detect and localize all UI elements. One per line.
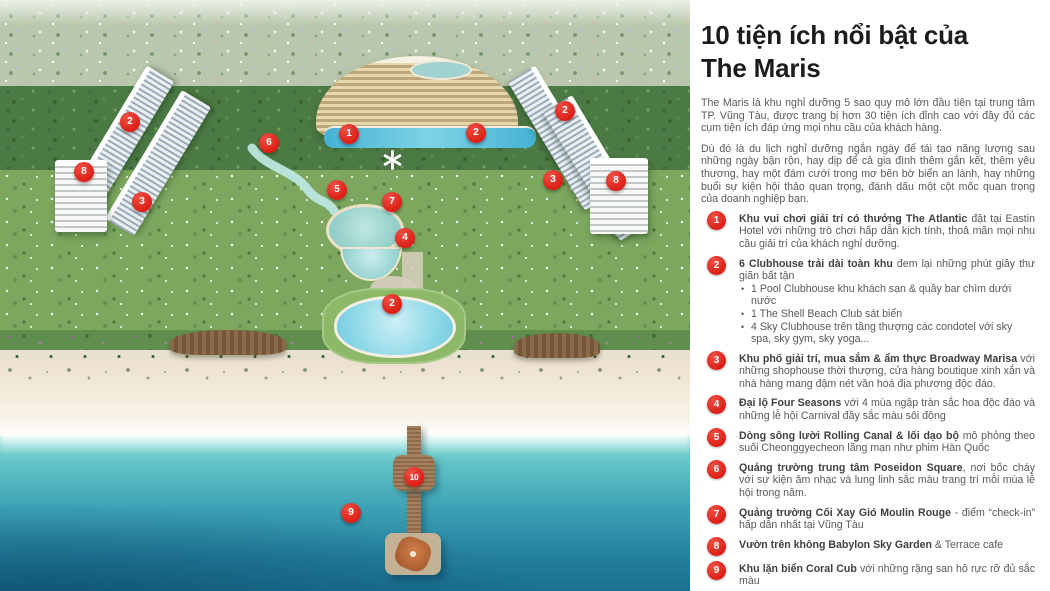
amenity-item: 3 Khu phố giải trí, mua sắm & ẩm thực Br… xyxy=(701,353,1035,391)
map-marker: 8 xyxy=(74,162,94,182)
amenity-item: 7 Quảng trường Cối Xay Gió Moulin Rouge … xyxy=(701,507,1035,532)
amenity-title: 6 Clubhouse trải dài toàn khu xyxy=(739,258,893,270)
amenity-title: Quảng trường Cối Xay Gió Moulin Rouge xyxy=(739,507,951,519)
amenity-text: Vườn trên không Babylon Sky Garden & Ter… xyxy=(739,539,1035,552)
palapa-roof-right xyxy=(514,333,600,358)
amenity-title: Đại lộ Four Seasons xyxy=(739,397,841,409)
map-marker: 6 xyxy=(259,133,279,153)
info-panel: 10 tiện ích nổi bật của The Maris The Ma… xyxy=(690,0,1050,591)
amenity-title: Dòng sông lười Rolling Canal & lối dạo b… xyxy=(739,430,959,442)
amenity-number-badge: 2 xyxy=(707,256,726,275)
amenity-text: Khu vui chơi giải trí có thưởng The Atla… xyxy=(739,213,1035,251)
amenity-number-badge: 7 xyxy=(707,505,726,524)
amenity-text: Khu phố giải trí, mua sắm & ẩm thực Broa… xyxy=(739,353,1035,391)
amenity-item: 6 Quảng trường trung tâm Poseidon Square… xyxy=(701,462,1035,500)
map-marker: 4 xyxy=(395,228,415,248)
amenities-list: 1 Khu vui chơi giải trí có thưởng The At… xyxy=(701,213,1035,591)
amenity-title: Khu vui chơi giải trí có thưởng The Atla… xyxy=(739,213,967,225)
map-marker: 2 xyxy=(466,123,486,143)
shoreline-foam xyxy=(0,420,690,454)
map-marker: 1 xyxy=(339,124,359,144)
intro-paragraph-2: Dù đó là du lịch nghỉ dưỡng ngắn ngày để… xyxy=(701,143,1035,206)
page-title: 10 tiện ích nổi bật của The Maris xyxy=(701,19,1035,85)
hotel-roof-deck xyxy=(410,60,472,80)
map-marker: 7 xyxy=(382,192,402,212)
amenity-number-badge: 8 xyxy=(707,537,726,556)
title-line-1: 10 tiện ích nổi bật của xyxy=(701,20,968,50)
amenity-sub-bullet: 4 Sky Clubhouse trên tầng thượng các con… xyxy=(739,321,1035,346)
amenity-item: 9 Khu lặn biển Coral Cub với những rặng … xyxy=(701,563,1035,588)
map-marker: 10 xyxy=(404,467,424,487)
amenity-number-badge: 3 xyxy=(707,351,726,370)
amenity-text: Quảng trường Cối Xay Gió Moulin Rouge - … xyxy=(739,507,1035,532)
amenity-item: 1 Khu vui chơi giải trí có thưởng The At… xyxy=(701,213,1035,251)
amenity-number-badge: 6 xyxy=(707,460,726,479)
amenity-text: Khu lặn biển Coral Cub với những rặng sa… xyxy=(739,563,1035,588)
amenity-item: 5 Dòng sông lười Rolling Canal & lối dạo… xyxy=(701,430,1035,455)
amenity-description: & Terrace cafe xyxy=(932,539,1003,551)
map-marker: 5 xyxy=(327,180,347,200)
map-marker: 2 xyxy=(555,101,575,121)
amenity-text: 6 Clubhouse trải dài toàn khu đem lại nh… xyxy=(739,258,1035,346)
amenity-text: Đại lộ Four Seasons với 4 mùa ngập tràn … xyxy=(739,397,1035,422)
amenity-number-badge: 4 xyxy=(707,395,726,414)
beach-umbrella-row xyxy=(0,364,690,388)
map-marker: 3 xyxy=(132,192,152,212)
intro-paragraph-1: The Maris là khu nghỉ dưỡng 5 sao quy mô… xyxy=(701,97,1035,135)
amenity-title: Quảng trường trung tâm Poseidon Square xyxy=(739,462,963,474)
amenity-number-badge: 9 xyxy=(707,561,726,580)
amenity-title: Khu lặn biển Coral Cub xyxy=(739,563,857,575)
map-marker: 2 xyxy=(120,112,140,132)
tower-block-right xyxy=(590,158,648,234)
map-marker: 9 xyxy=(341,503,361,523)
amenity-text: Quảng trường trung tâm Poseidon Square, … xyxy=(739,462,1035,500)
palapa-roof-left xyxy=(170,330,286,355)
amenity-sub-bullet: 1 Pool Clubhouse khu khách sạn & quầy ba… xyxy=(739,283,1035,308)
title-line-2: The Maris xyxy=(701,53,821,83)
amenity-number-badge: 1 xyxy=(707,211,726,230)
amenity-number-badge: 5 xyxy=(707,428,726,447)
pier-pavilion-finial xyxy=(410,551,416,557)
amenity-item: 8 Vườn trên không Babylon Sky Garden & T… xyxy=(701,539,1035,556)
amenity-title: Vườn trên không Babylon Sky Garden xyxy=(739,539,932,551)
resort-aerial-map: 1 2 2 2 2 3 3 4 5 6 7 8 8 9 10 xyxy=(0,0,690,591)
map-marker: 3 xyxy=(543,170,563,190)
map-marker: 2 xyxy=(382,294,402,314)
amenity-sub-bullet: 1 The Shell Beach Club sát biển xyxy=(739,308,1035,321)
amenity-title: Khu phố giải trí, mua sắm & ẩm thực Broa… xyxy=(739,353,1017,365)
map-marker: 8 xyxy=(606,171,626,191)
amenity-item: 2 6 Clubhouse trải dài toàn khu đem lại … xyxy=(701,258,1035,346)
amenity-text: Dòng sông lười Rolling Canal & lối dạo b… xyxy=(739,430,1035,455)
infographic-page: 1 2 2 2 2 3 3 4 5 6 7 8 8 9 10 10 tiện í… xyxy=(0,0,1050,591)
amenity-item: 4 Đại lộ Four Seasons với 4 mùa ngập trà… xyxy=(701,397,1035,422)
